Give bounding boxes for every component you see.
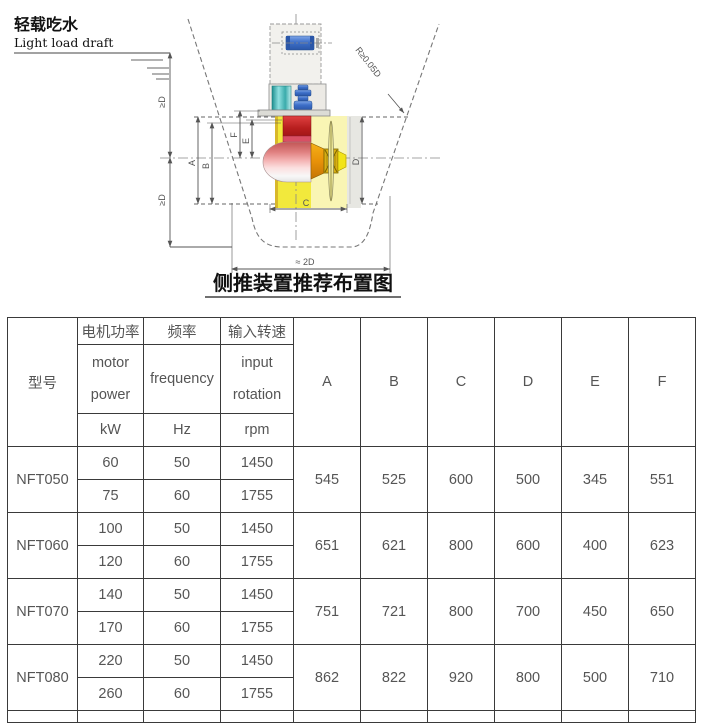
dim-a-label: A xyxy=(187,160,197,166)
water-surface-symbol xyxy=(131,60,169,79)
table-row: NFT050 60 50 1450 545 525 600 500 345 55… xyxy=(8,447,696,480)
header-freq-unit: Hz xyxy=(144,414,221,447)
dim-e-cell: 450 xyxy=(562,579,629,645)
tunnel-radius-label: R≥0.05D xyxy=(353,45,383,79)
rpm-cell: 1755 xyxy=(221,678,294,711)
diagram-caption: 侧推装置推荐布置图 xyxy=(213,271,393,295)
header-power-en-line1: motor xyxy=(78,347,143,379)
model-cell: NFT050 xyxy=(8,447,78,513)
power-cell: 100 xyxy=(78,513,144,546)
header-freq-en: frequency xyxy=(144,345,221,414)
freq-cell: 50 xyxy=(144,579,221,612)
gearbox xyxy=(283,116,311,142)
thruster-layout-diagram: 轻载吃水 Light load draft ≥D ≥D xyxy=(0,0,707,312)
table-row-clipped xyxy=(8,711,696,723)
header-rotation-unit: rpm xyxy=(221,414,294,447)
rpm-cell: 1755 xyxy=(221,612,294,645)
dim-f-cell: 650 xyxy=(629,579,696,645)
dim-b-cell: 822 xyxy=(361,645,428,711)
power-cell: 220 xyxy=(78,645,144,678)
dim-e-cell: 400 xyxy=(562,513,629,579)
light-draft-label-en: Light load draft xyxy=(14,35,113,50)
dim-d-label: D xyxy=(351,158,361,165)
dim-a-cell: 862 xyxy=(294,645,361,711)
dim-e-cell: 500 xyxy=(562,645,629,711)
freq-cell: 50 xyxy=(144,513,221,546)
dim-a-cell: 651 xyxy=(294,513,361,579)
rpm-cell: 1450 xyxy=(221,513,294,546)
freq-cell: 60 xyxy=(144,678,221,711)
dim-e-label: E xyxy=(241,138,251,144)
power-cell: 140 xyxy=(78,579,144,612)
dim-c-cell: 920 xyxy=(428,645,495,711)
dim-d-cell: 700 xyxy=(495,579,562,645)
header-model: 型号 xyxy=(8,318,78,447)
power-cell: 260 xyxy=(78,678,144,711)
header-freq-zh: 频率 xyxy=(144,318,221,345)
table-row: NFT060 100 50 1450 651 621 800 600 400 6… xyxy=(8,513,696,546)
dim-f-label: F xyxy=(229,132,239,138)
header-dim-f: F xyxy=(629,318,696,447)
pod-body xyxy=(263,142,311,182)
header-rotation-en-line1: input xyxy=(221,347,293,379)
thruster-spec-table: 型号 电机功率 频率 输入转速 A B C D E F motor power … xyxy=(7,317,696,723)
header-rotation-zh: 输入转速 xyxy=(221,318,294,345)
coupling-unit xyxy=(269,84,326,112)
header-power-unit: kW xyxy=(78,414,144,447)
model-cell: NFT080 xyxy=(8,645,78,711)
dim-a-cell: 545 xyxy=(294,447,361,513)
rpm-cell: 1450 xyxy=(221,447,294,480)
freq-cell: 60 xyxy=(144,480,221,513)
header-power-en: motor power xyxy=(78,345,144,414)
dim-b-cell: 621 xyxy=(361,513,428,579)
dim-b-cell: 525 xyxy=(361,447,428,513)
power-cell: 75 xyxy=(78,480,144,513)
depth-dimension xyxy=(170,53,232,247)
hub-cone xyxy=(311,143,324,179)
propeller-blade xyxy=(329,121,334,201)
dim-d-cell: 800 xyxy=(495,645,562,711)
power-cell: 170 xyxy=(78,612,144,645)
header-dim-d: D xyxy=(495,318,562,447)
dim-2d-label: ≈ 2D xyxy=(296,257,315,267)
dim-c-cell: 800 xyxy=(428,513,495,579)
header-rotation-en: input rotation xyxy=(221,345,294,414)
light-draft-label-zh: 轻载吃水 xyxy=(14,15,79,34)
header-dim-b: B xyxy=(361,318,428,447)
dim-f-cell: 710 xyxy=(629,645,696,711)
rpm-cell: 1755 xyxy=(221,480,294,513)
header-power-zh: 电机功率 xyxy=(78,318,144,345)
rpm-cell: 1450 xyxy=(221,645,294,678)
dim-c-cell: 800 xyxy=(428,579,495,645)
dim-c-label: C xyxy=(303,198,310,208)
freq-cell: 60 xyxy=(144,612,221,645)
dim-b-label: B xyxy=(201,163,211,169)
model-cell: NFT060 xyxy=(8,513,78,579)
rpm-cell: 1450 xyxy=(221,579,294,612)
deck-plate xyxy=(258,110,330,116)
dim-d-cell: 500 xyxy=(495,447,562,513)
header-dim-c: C xyxy=(428,318,495,447)
dim-e-cell: 345 xyxy=(562,447,629,513)
header-dim-e: E xyxy=(562,318,629,447)
power-cell: 120 xyxy=(78,546,144,579)
freq-cell: 60 xyxy=(144,546,221,579)
dim-a-cell: 751 xyxy=(294,579,361,645)
power-cell: 60 xyxy=(78,447,144,480)
header-power-en-line2: power xyxy=(78,379,143,411)
tunnel-radius-leader xyxy=(388,94,404,113)
header-rotation-en-line2: rotation xyxy=(221,379,293,411)
dim-b-cell: 721 xyxy=(361,579,428,645)
dim-f-cell: 623 xyxy=(629,513,696,579)
dim-f-cell: 551 xyxy=(629,447,696,513)
ge-d-lower-label: ≥D xyxy=(157,194,167,206)
motor-envelope xyxy=(270,24,321,84)
ge-d-upper-label: ≥D xyxy=(157,96,167,108)
freq-cell: 50 xyxy=(144,447,221,480)
table-row: NFT070 140 50 1450 751 721 800 700 450 6… xyxy=(8,579,696,612)
model-cell: NFT070 xyxy=(8,579,78,645)
dim-c-cell: 600 xyxy=(428,447,495,513)
freq-cell: 50 xyxy=(144,645,221,678)
table-row: NFT080 220 50 1450 862 822 920 800 500 7… xyxy=(8,645,696,678)
rpm-cell: 1755 xyxy=(221,546,294,579)
dim-d-cell: 600 xyxy=(495,513,562,579)
header-dim-a: A xyxy=(294,318,361,447)
